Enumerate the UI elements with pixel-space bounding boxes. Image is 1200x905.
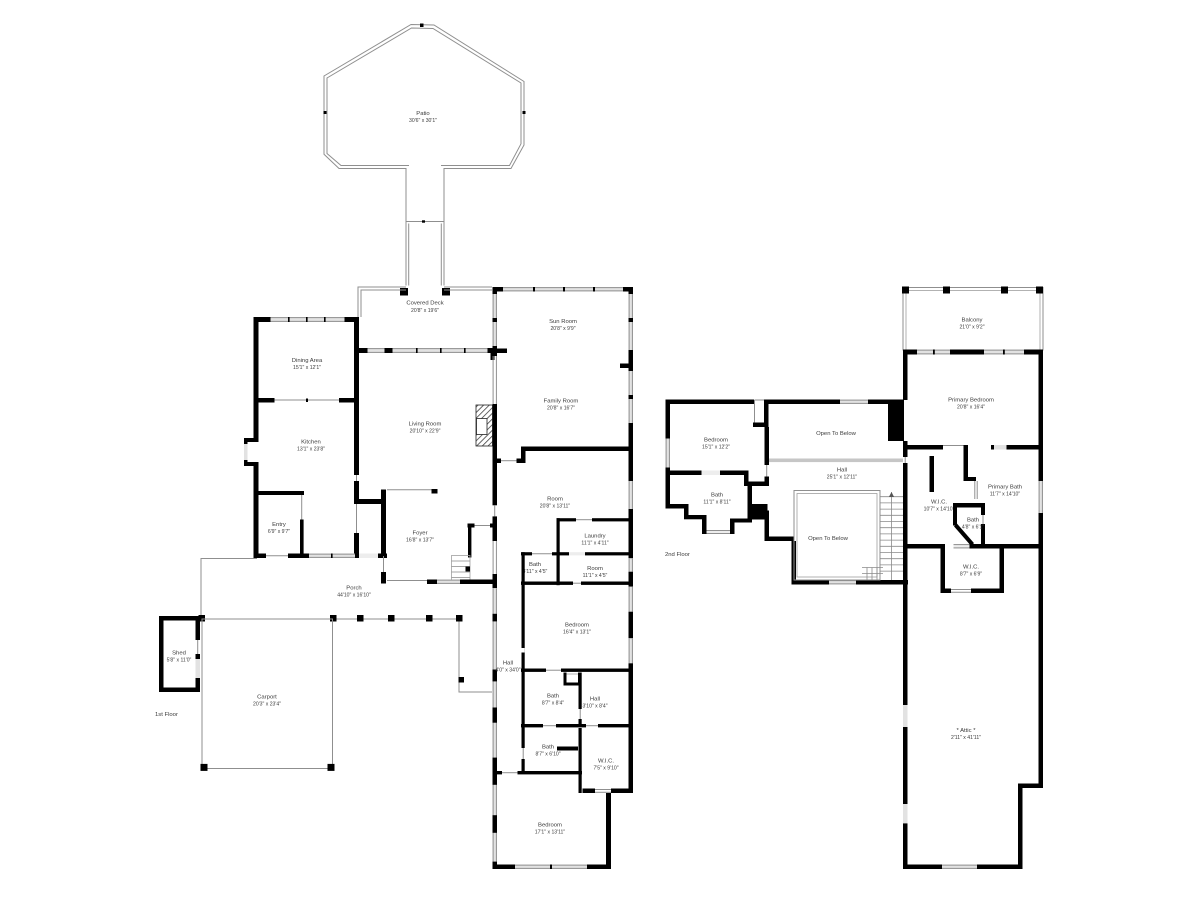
svg-text:7'5" x 9'10": 7'5" x 9'10" (593, 766, 618, 772)
svg-text:Dining Area: Dining Area (292, 358, 323, 364)
svg-text:Sun Room: Sun Room (549, 319, 577, 325)
svg-text:Bedroom: Bedroom (538, 823, 562, 829)
svg-text:5'8" x 11'0": 5'8" x 11'0" (167, 658, 192, 664)
svg-text:4'8" x 6'1": 4'8" x 6'1" (962, 525, 984, 531)
svg-text:Laundry: Laundry (584, 534, 605, 540)
svg-text:W.I.C.: W.I.C. (963, 565, 979, 571)
svg-text:25'1" x 12'11": 25'1" x 12'11" (827, 475, 858, 481)
svg-text:30'6" x 30'1": 30'6" x 30'1" (409, 118, 437, 124)
svg-text:Balcony: Balcony (962, 318, 983, 324)
svg-text:11'1" x 4'11": 11'1" x 4'11" (581, 541, 608, 547)
svg-text:Covered Deck: Covered Deck (406, 301, 443, 307)
svg-text:21'0" x 9'2": 21'0" x 9'2" (959, 325, 984, 331)
svg-text:Shed: Shed (172, 651, 186, 657)
svg-text:16'8" x 13'7": 16'8" x 13'7" (406, 538, 434, 544)
svg-text:20'8" x 9'9": 20'8" x 9'9" (550, 326, 575, 332)
svg-text:20'10" x 22'9": 20'10" x 22'9" (410, 429, 441, 435)
svg-text:Open To Below: Open To Below (808, 536, 849, 542)
svg-text:11'1" x 4'5": 11'1" x 4'5" (583, 573, 608, 579)
svg-text:Primary Bedroom: Primary Bedroom (948, 398, 994, 404)
svg-text:11'1" x 8'11": 11'1" x 8'11" (703, 500, 730, 506)
svg-text:16'4" x 13'1": 16'4" x 13'1" (563, 630, 591, 636)
svg-text:8'7" x 6'9": 8'7" x 6'9" (960, 572, 982, 578)
svg-text:20'8" x 13'11": 20'8" x 13'11" (540, 504, 571, 510)
svg-text:6'9" x 9'7": 6'9" x 9'7" (268, 529, 290, 535)
svg-text:13'1" x 23'8": 13'1" x 23'8" (297, 447, 325, 453)
svg-text:8'7" x 8'4": 8'7" x 8'4" (542, 701, 564, 707)
svg-text:Bedroom: Bedroom (704, 438, 728, 444)
svg-text:44'10" x 16'10": 44'10" x 16'10" (337, 593, 371, 599)
svg-text:20'8" x 19'6": 20'8" x 19'6" (411, 308, 439, 314)
svg-text:Porch: Porch (346, 586, 361, 592)
svg-text:3'10" x 8'4": 3'10" x 8'4" (582, 704, 607, 710)
svg-text:11'7" x 14'10": 11'7" x 14'10" (990, 492, 1021, 498)
svg-text:Bath: Bath (542, 745, 554, 751)
svg-text:Bath: Bath (967, 518, 979, 524)
svg-text:2'11" x 41'11": 2'11" x 41'11" (951, 735, 981, 741)
svg-text:Bedroom: Bedroom (565, 623, 589, 629)
svg-text:Kitchen: Kitchen (301, 440, 321, 446)
svg-text:W.I.C.: W.I.C. (931, 500, 947, 506)
svg-text:20'8" x 16'4": 20'8" x 16'4" (957, 405, 985, 411)
svg-text:17'1" x 13'11": 17'1" x 13'11" (535, 830, 566, 836)
svg-text:Hall: Hall (503, 661, 513, 667)
svg-text:W.I.C.: W.I.C. (598, 759, 614, 765)
svg-text:Room: Room (547, 497, 563, 503)
svg-text:Primary Bath: Primary Bath (988, 485, 1022, 491)
svg-text:Hall: Hall (590, 697, 600, 703)
svg-text:10'7" x 14'10": 10'7" x 14'10" (924, 507, 955, 513)
svg-text:Bath: Bath (529, 562, 541, 568)
svg-text:Living Room: Living Room (409, 422, 442, 428)
svg-text:Patio: Patio (416, 111, 430, 117)
svg-text:Bath: Bath (547, 694, 559, 700)
svg-text:4'11" x 4'5": 4'11" x 4'5" (523, 569, 548, 575)
svg-text:15'1" x 12'1": 15'1" x 12'1" (293, 365, 321, 371)
svg-text:1st Floor: 1st Floor (155, 712, 178, 718)
svg-text:2nd Floor: 2nd Floor (665, 552, 690, 558)
svg-text:Carport: Carport (257, 695, 277, 701)
svg-text:Foyer: Foyer (412, 531, 427, 537)
svg-text:Bath: Bath (711, 493, 723, 499)
svg-text:Open To Below: Open To Below (816, 431, 857, 437)
svg-text:20'8" x 16'7": 20'8" x 16'7" (547, 406, 575, 412)
svg-text:4'0" x 34'0": 4'0" x 34'0" (495, 668, 520, 674)
svg-text:20'3" x 23'4": 20'3" x 23'4" (253, 702, 281, 708)
svg-text:15'1" x 12'2": 15'1" x 12'2" (702, 445, 730, 451)
svg-text:8'7" x 6'10": 8'7" x 6'10" (535, 752, 560, 758)
svg-text:* Attic *: * Attic * (957, 728, 977, 734)
svg-text:Hall: Hall (837, 468, 847, 474)
svg-text:Entry: Entry (272, 522, 286, 528)
svg-text:Room: Room (587, 566, 603, 572)
svg-text:Family Room: Family Room (544, 399, 579, 405)
